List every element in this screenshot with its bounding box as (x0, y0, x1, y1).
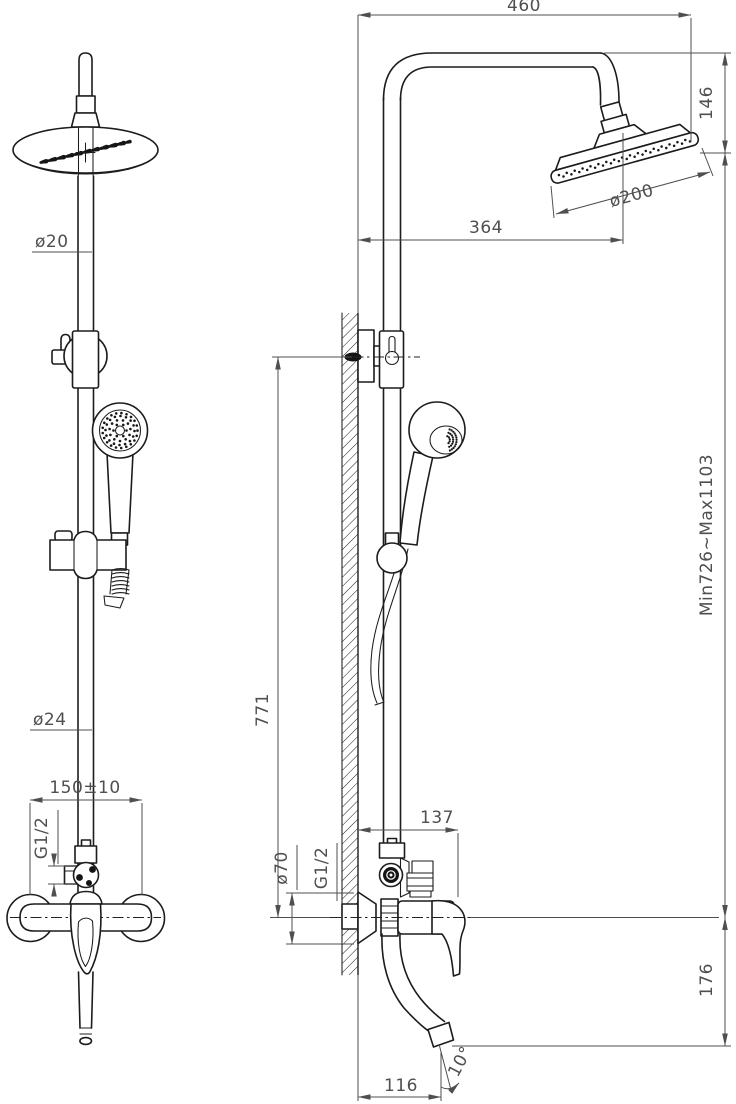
riser-pipe-cap (79, 53, 92, 96)
head-neck (72, 113, 100, 127)
dim-label-escutcheon-diameter: ø70 (272, 851, 292, 885)
dim-label-inlet-spacing: 150±10 (49, 778, 120, 798)
wall-section (342, 313, 358, 975)
dim-label-front-inlet-thread: G1/2 (32, 817, 52, 860)
dim-label-upper-pipe-diameter: ø20 (35, 232, 69, 252)
head-nut (77, 96, 96, 113)
dim-label-spout-reach: 116 (384, 1076, 418, 1096)
dim-label-side-inlet-thread: G1/2 (312, 847, 332, 890)
dim-label-mixer-projection: 137 (420, 808, 454, 828)
drawing-sheet: 460 146 Min726~Max1103 176 364 ø200 137 … (0, 0, 736, 1104)
technical-drawing-canvas: 460 146 Min726~Max1103 176 364 ø200 137 … (0, 0, 736, 1104)
dim-label-head-offset: 364 (469, 218, 503, 238)
dim-label-spout-drop: 176 (697, 963, 717, 997)
dim-label-bracket-height: 771 (253, 693, 273, 727)
wall-inlet (342, 904, 358, 929)
dim-label-height-range: Min726~Max1103 (697, 454, 717, 616)
dim-label-lower-pipe-diameter: ø24 (33, 710, 67, 730)
dim-label-head-drop: 146 (697, 86, 717, 120)
dim-label-top-width: 460 (507, 0, 541, 16)
hand-shower-handle (107, 453, 133, 533)
